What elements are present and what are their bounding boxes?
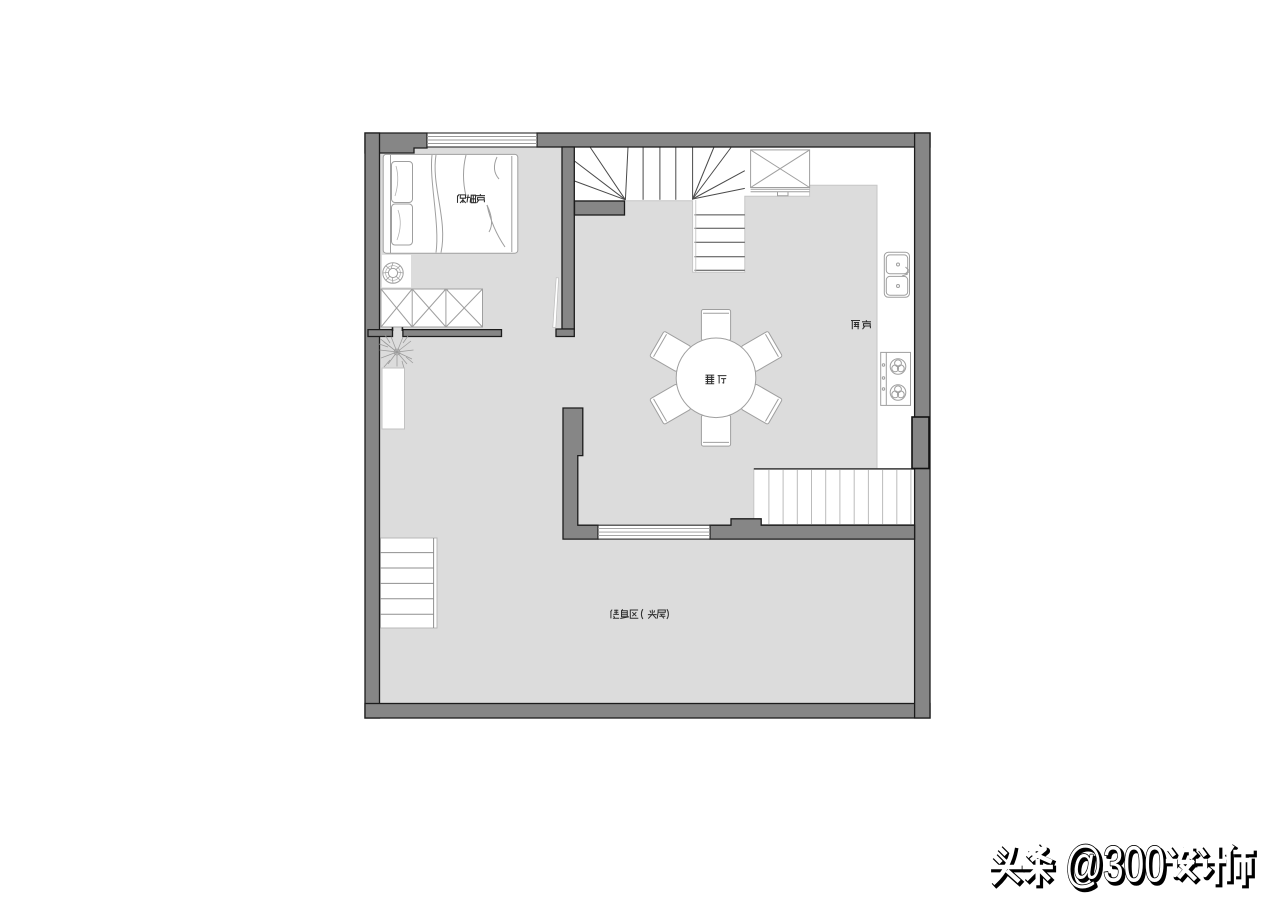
svg-text:@300: @300 (1065, 836, 1165, 893)
